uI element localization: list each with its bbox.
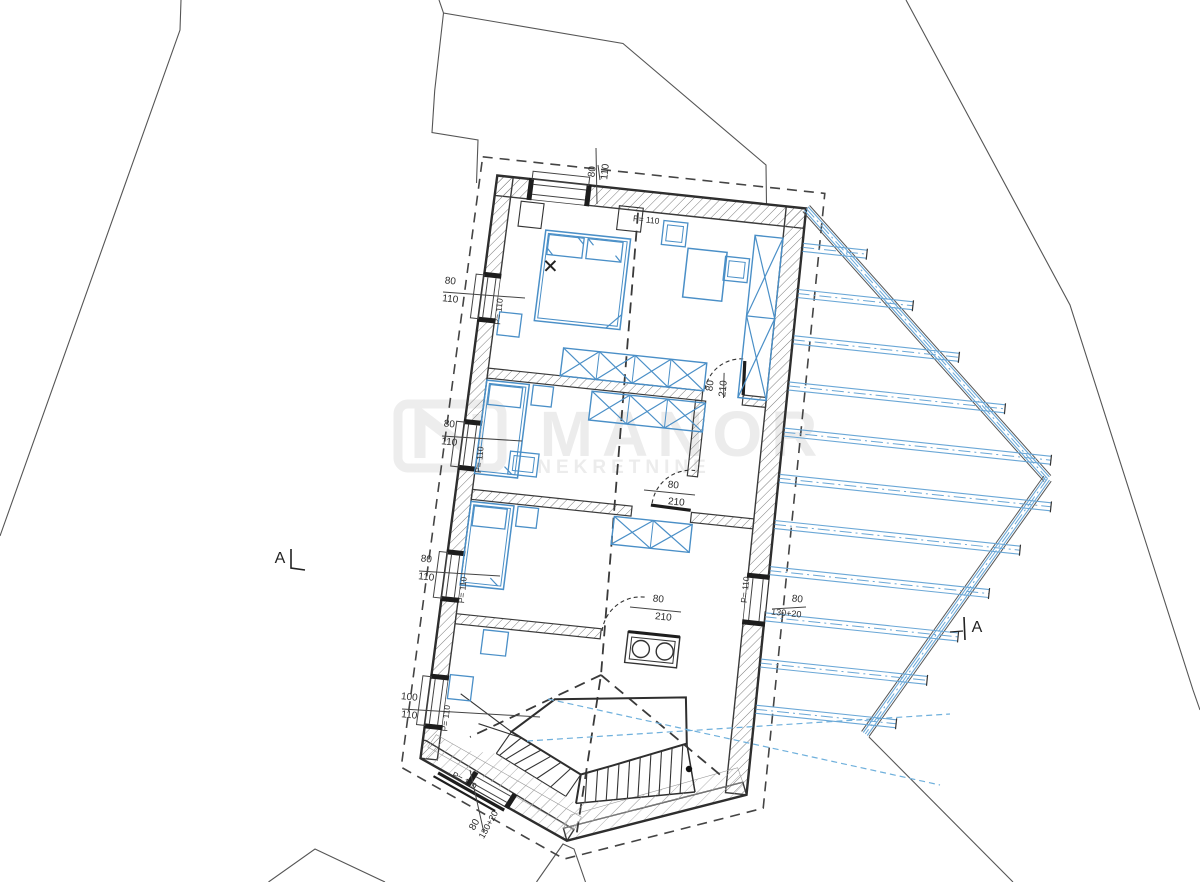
svg-text:80: 80 [667,479,680,491]
svg-text:A: A [972,619,983,636]
svg-text:80: 80 [652,593,665,605]
svg-text:110: 110 [442,293,459,306]
svg-text:80: 80 [704,379,716,392]
svg-text:80: 80 [420,553,433,565]
svg-text:210: 210 [667,496,685,509]
svg-text:110: 110 [599,163,612,180]
svg-text:NEKRETNINE: NEKRETNINE [537,457,711,478]
svg-text:80: 80 [443,418,456,430]
svg-text:80: 80 [444,275,457,287]
svg-text:110: 110 [418,571,435,584]
svg-text:110: 110 [401,709,418,722]
svg-text:A: A [275,550,286,567]
svg-text:80: 80 [791,593,804,605]
svg-text:100: 100 [400,691,418,704]
svg-text:210: 210 [654,611,672,624]
svg-text:110: 110 [441,436,458,449]
